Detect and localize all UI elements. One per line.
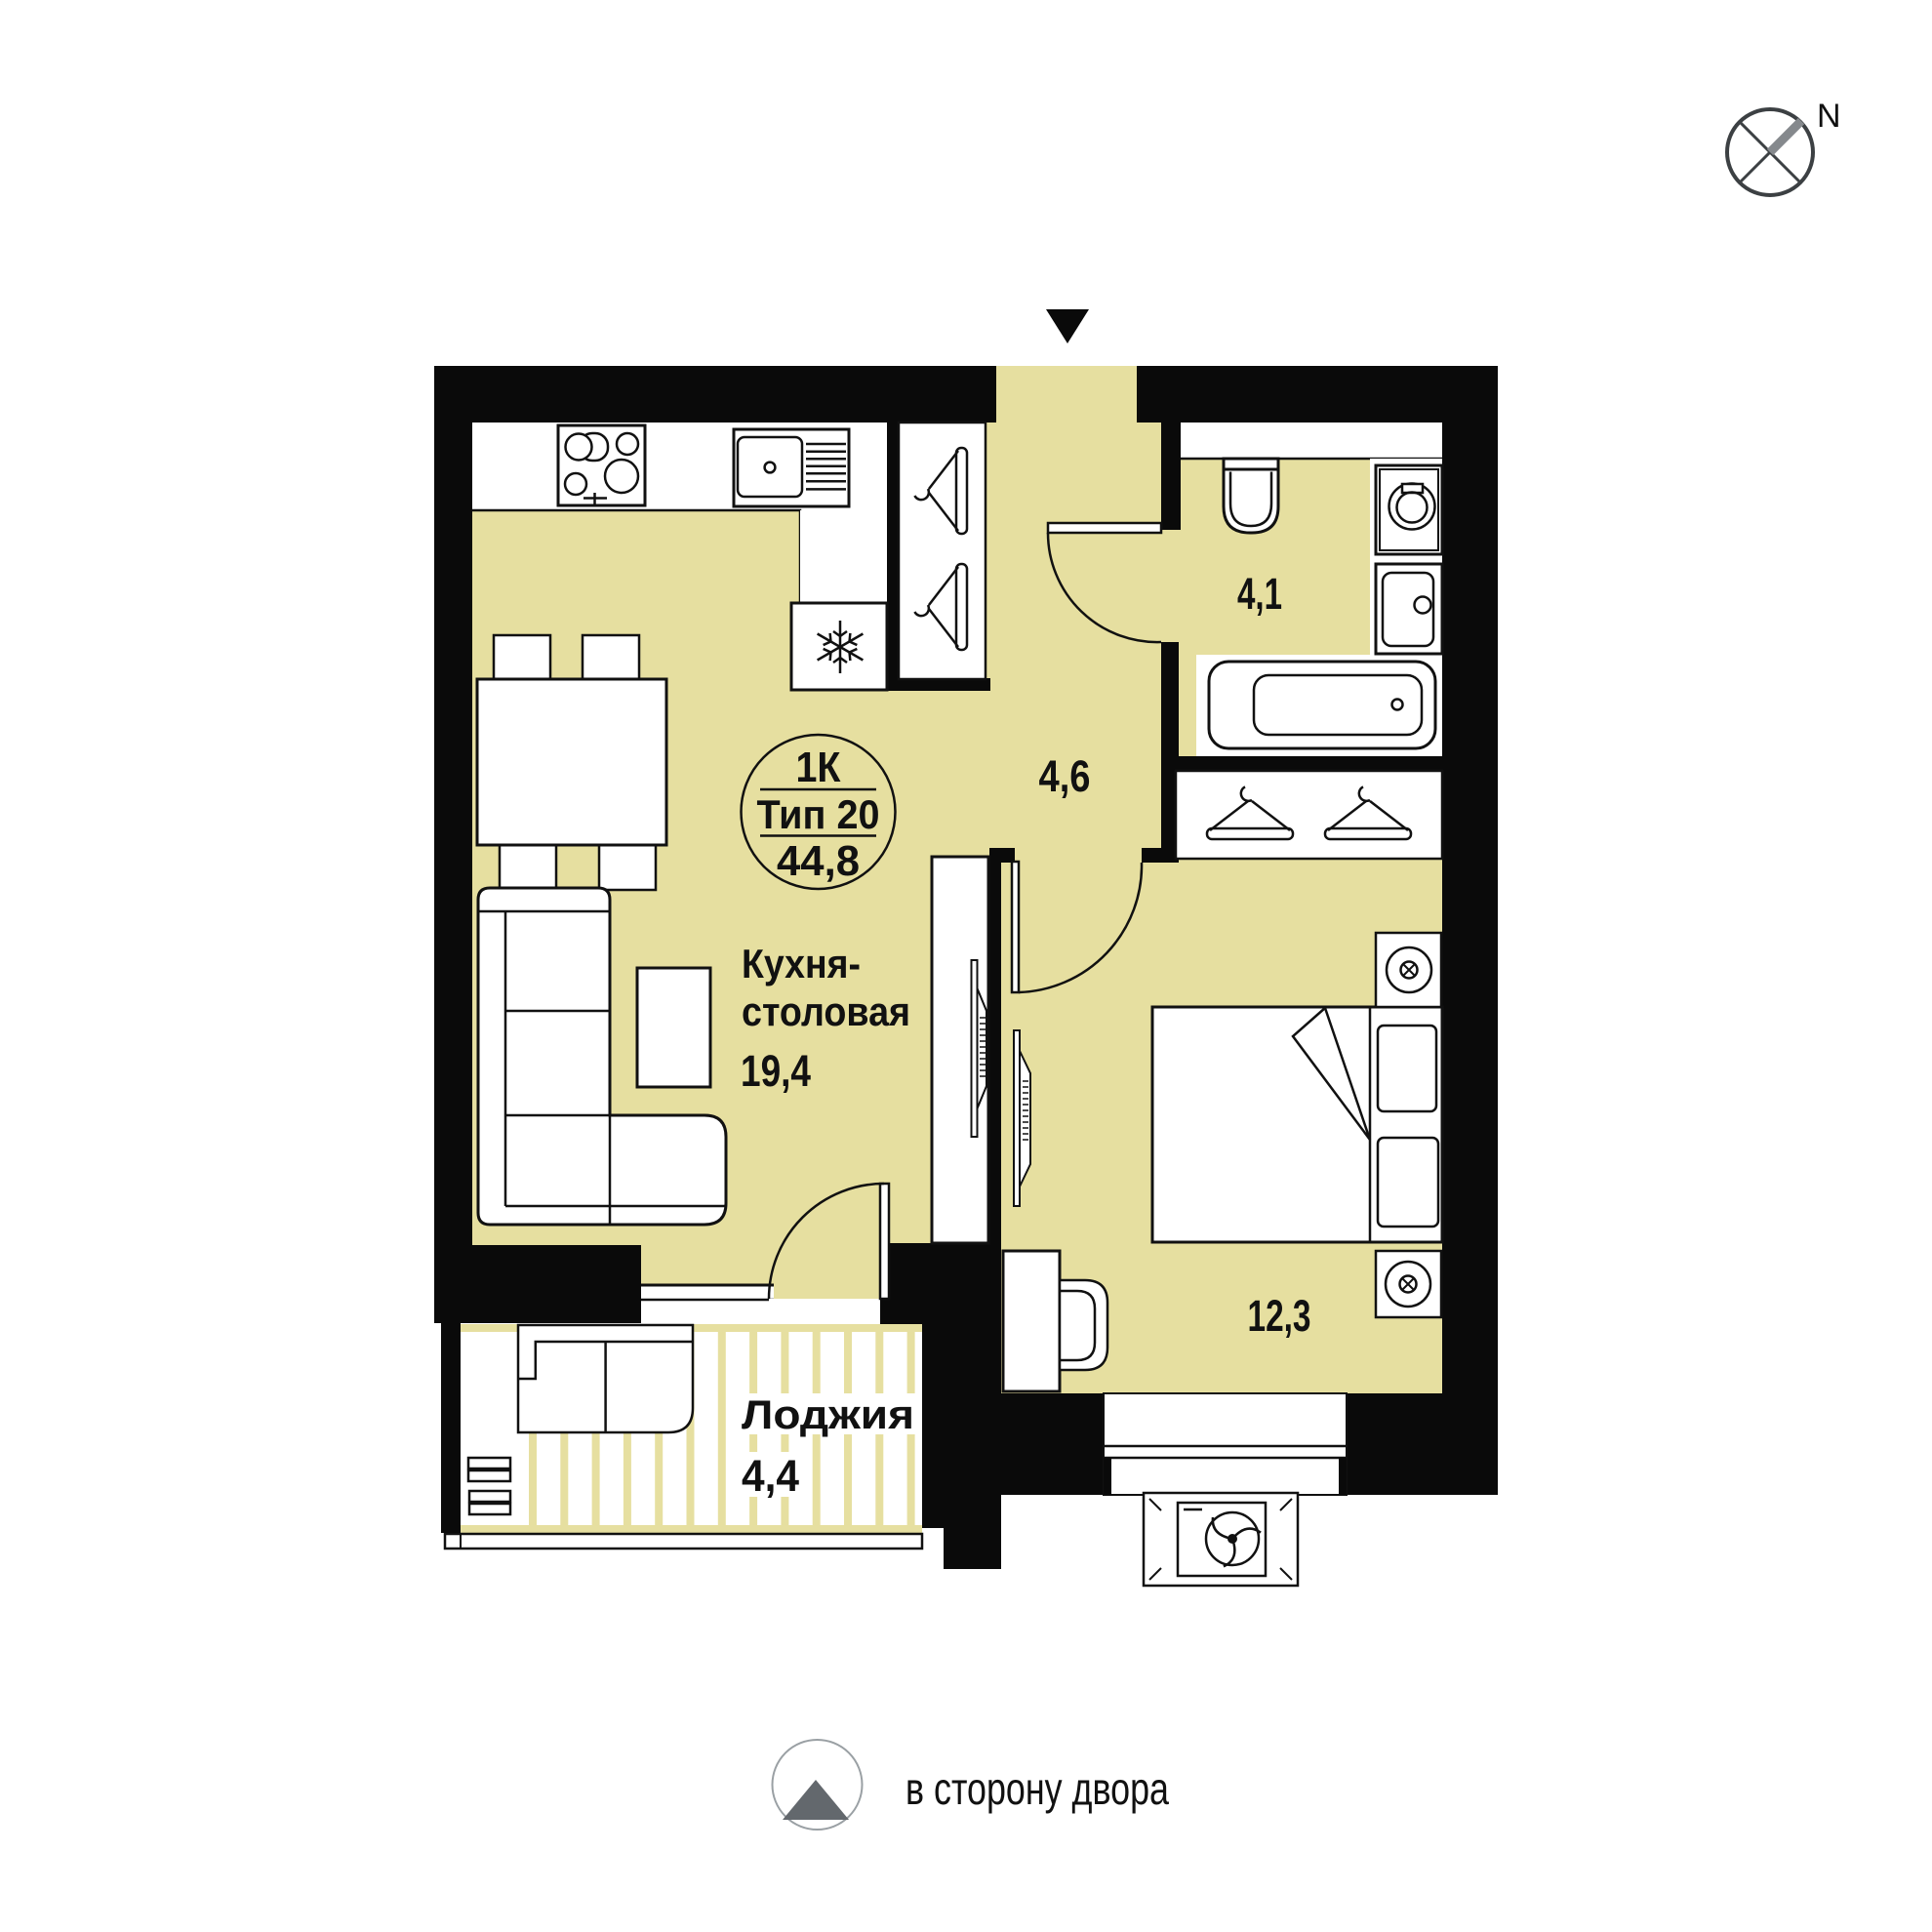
svg-text:19,4: 19,4	[741, 1046, 811, 1096]
svg-text:в сторону двора: в сторону двора	[906, 1763, 1169, 1814]
svg-text:4,1: 4,1	[1237, 569, 1282, 619]
svg-text:Тип 20: Тип 20	[757, 791, 880, 837]
svg-text:Кухня-: Кухня-	[742, 941, 861, 986]
svg-text:4,6: 4,6	[1039, 751, 1091, 801]
svg-text:4,4: 4,4	[742, 1451, 799, 1501]
svg-text:44,8: 44,8	[777, 837, 860, 885]
svg-text:12,3: 12,3	[1248, 1291, 1311, 1341]
svg-text:1К: 1К	[796, 744, 841, 791]
svg-text:столовая: столовая	[742, 988, 910, 1034]
svg-text:N: N	[1817, 98, 1841, 135]
svg-text:Лоджия: Лоджия	[742, 1391, 914, 1437]
